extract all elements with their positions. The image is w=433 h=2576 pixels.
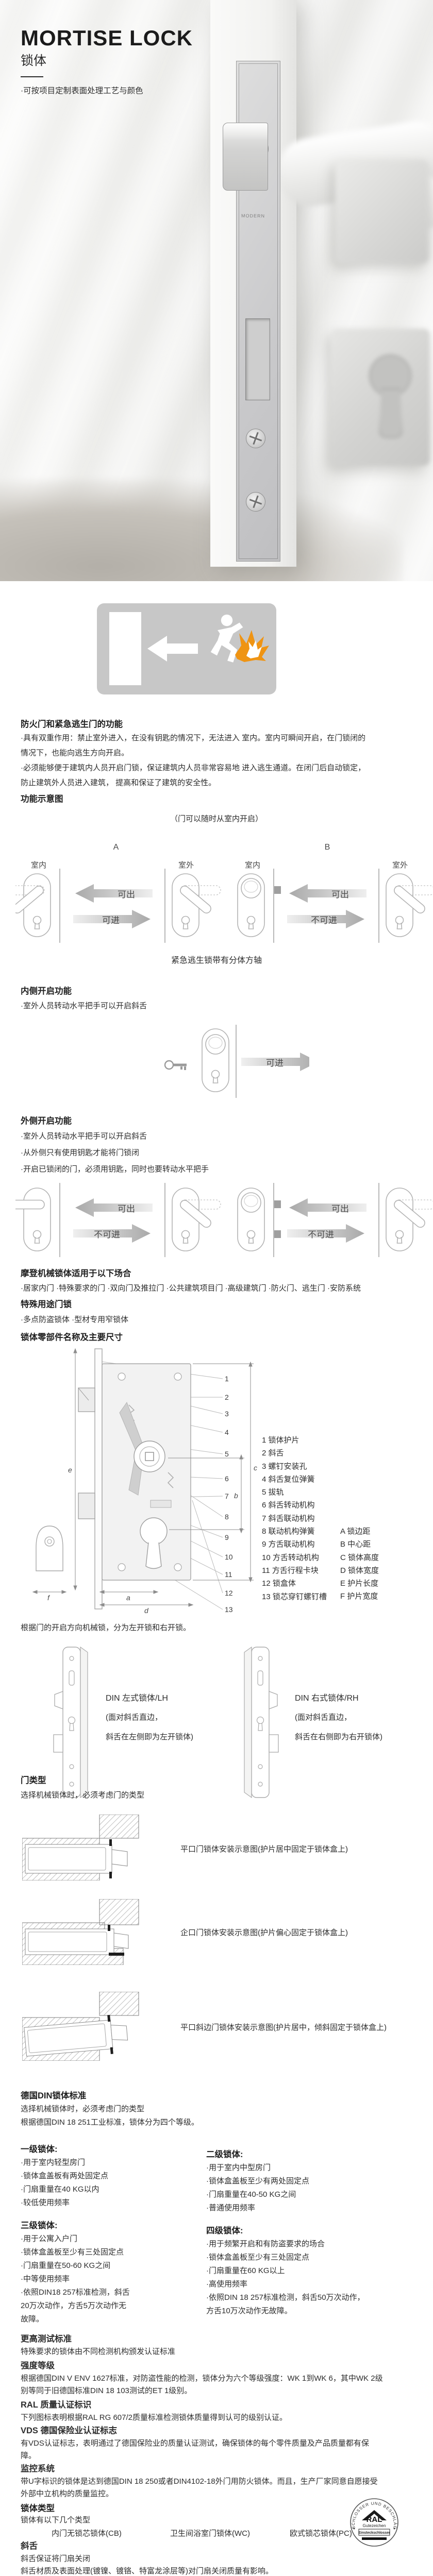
door-type-sub: 选择机械锁体时，必须考虑门的类型 [21, 1789, 144, 1800]
svg-text:3: 3 [225, 1410, 229, 1418]
latch-wedge [112, 1850, 127, 1866]
grade-bullet: ·依照DIN 18 257标准检测，斜舌50万次动作， [206, 2291, 365, 2304]
key-icon [165, 1061, 187, 1070]
rh-line2: 斜舌在右侧即为右开锁体) [295, 1731, 382, 1742]
block-line: 根据德国DIN V ENV 1627标准，对防盗性能的检测，锁体分为六个等级强度… [21, 2372, 383, 2385]
outdoor-label: 室外 [178, 861, 194, 870]
can-exit-label: 可出 [118, 890, 135, 900]
deadbolt-drawing [78, 1493, 95, 1519]
grade-title: 四级锁体: [206, 2224, 365, 2236]
diagram-b-escape-function: 室内 室外 可出 不可进 [229, 859, 433, 946]
svg-text:d: d [144, 1606, 149, 1615]
diagram-a-escape-function: 室内 室外 可出 可进 [15, 859, 224, 946]
grade-bullet: ·高使用频率 [206, 2278, 365, 2291]
no-enter-label: 不可进 [311, 916, 337, 925]
outer-open-bullet-1: ·室外人员转动水平把手可以开启斜舌 [21, 1130, 147, 1141]
lh-line2: 斜舌在左侧即为左开锁体) [106, 1731, 193, 1742]
lock-type-pc: 欧式锁芯锁体(PC) [290, 2528, 352, 2538]
grade-bullet: ·依照DIN18 257标准检测，斜舌 [21, 2286, 130, 2299]
grade-bullet: ·用于室内中型房门 [206, 2161, 309, 2175]
strength-grade-block: 强度等级 根据德国DIN V ENV 1627标准，对防盗性能的检测，锁体分为六… [21, 2360, 383, 2398]
grade-bullet: ·锁体盒盖板至少有两处固定点 [206, 2175, 309, 2188]
split-spindle-caption: 紧急逃生锁带有分体方轴 [0, 953, 433, 965]
svg-text:e: e [68, 1466, 72, 1474]
seal-corner [109, 1953, 124, 1956]
lock-body-rh [244, 1647, 278, 1798]
grade-bullet: ·门扇重量在50-60 KG之间 [21, 2259, 130, 2273]
din-sub2: 根据德国DIN 18 251工业标准，锁体分为四个等级。 [21, 2116, 199, 2127]
latch-block-bottom [274, 1230, 281, 1238]
rh-title: DIN 右式锁体/RH [295, 1691, 359, 1703]
lock-type-wc: 卫生间浴室门锁体(WC) [170, 2528, 250, 2538]
grade-2-block: 二级锁体: ·用于室内中型房门 ·锁体盒盖板至少有两处固定点 ·门扇重量在40-… [206, 2147, 309, 2215]
block-line: 斜舌材质及表面处理(镀镍、镀铬、特富龙涂层等)对门扇关闭质量有影响。 [21, 2565, 273, 2576]
faceplate-screw-mid [246, 429, 265, 448]
part-item: 8 联动机构弹簧 [262, 1525, 327, 1538]
lh-lock-drawing [47, 1645, 99, 1800]
part-item: 12 锁盒体 [262, 1577, 327, 1590]
svg-text:10: 10 [225, 1553, 233, 1561]
lock-box-section [28, 1848, 106, 1870]
page-subtitle: 锁体 [21, 50, 46, 69]
indoor-knob [241, 1193, 261, 1212]
exit-arrow [75, 884, 153, 903]
brand-logo: MODERN [241, 213, 265, 218]
install-diagram-flush [22, 1815, 172, 1880]
svg-text:8: 8 [225, 1513, 229, 1521]
din-heading: 德国DIN锁体标准 [21, 2089, 86, 2101]
dim-item: D 锁体宽度 [340, 1564, 379, 1577]
block-heading: 斜舌 [21, 2540, 273, 2553]
title-divider [21, 76, 43, 77]
jamb-top [99, 1815, 139, 1838]
seal-top [108, 1925, 110, 1931]
faceplate-screw-bottom [246, 492, 265, 512]
usage-heading: 摩登机械锁体适用于以下场合 [21, 1266, 131, 1279]
grade-bullet: 故障。 [21, 2313, 130, 2326]
part-item: 5 拔轨 [262, 1486, 327, 1499]
block-line: 有VDS认证标志，表明通过了德国保险业的质量认证测试，确保锁体的每个零件质量及产… [21, 2437, 369, 2450]
exit-arrow [289, 884, 367, 903]
handedness-caption: 根据门的开启方向机械锁，分为左开锁和右开锁。 [21, 1622, 191, 1633]
strike-piece [36, 1526, 63, 1571]
install-caption-bevel: 平口斜边门锁体安装示意图(护片居中，倾斜固定于锁体盒上) [180, 2022, 387, 2032]
grade-4-block: 四级锁体: ·用于频繁开启和有防盗要求的场合 ·锁体盒盖板至少有三处固定点 ·门… [206, 2224, 365, 2318]
latch-block-top [274, 1200, 281, 1208]
svg-text:6: 6 [225, 1475, 229, 1483]
outdoor-label: 室外 [392, 861, 408, 870]
svg-text:a: a [126, 1594, 130, 1602]
seal-top [109, 1839, 112, 1846]
part-item: 13 锁芯穿钉螺钉槽 [262, 1590, 327, 1603]
grade-bullet: ·用于频繁开启和有防盗要求的场合 [206, 2238, 365, 2251]
svg-text:b: b [234, 1492, 238, 1500]
rug-blur [0, 479, 402, 581]
part-item: 10 方舌转动机构 [262, 1551, 327, 1564]
block-line: 障。 [21, 2450, 369, 2463]
latch-wedge [111, 2024, 128, 2041]
fire-line-1: ·具有双重作用：禁止室外进入，在没有钥匙的情况下，无法进入 室内。室内可瞬间开启… [21, 732, 365, 743]
svg-text:1: 1 [225, 1375, 229, 1383]
grade-bullet: ·较低使用频率 [21, 2196, 108, 2210]
handle-rosette [335, 160, 429, 264]
grade-bullet: 20万次动作，方舌5万次动作无 [21, 2299, 130, 2313]
lock-type-cb: 内门无锁芯锁体(CB) [52, 2528, 122, 2538]
sign-door [109, 612, 141, 685]
special-lock-heading: 特殊用途门锁 [21, 1297, 72, 1310]
grade-bullet: ·普通使用频率 [206, 2201, 309, 2215]
latch-wedge [114, 1933, 128, 1948]
dimension-list: A 锁边距 B 中心距 C 锁体高度 D 锁体宽度 E 护片长度 F 护片宽度 [340, 1525, 379, 1603]
can-exit-label: 可出 [118, 1204, 135, 1214]
emergency-exit-sign [97, 603, 276, 694]
fire-line-4: 防止建筑外人员进入建筑， 提高和保证了建筑的安全性。 [21, 777, 216, 788]
svg-text:f: f [47, 1594, 51, 1602]
latch-bolt [223, 123, 268, 191]
grade-1-block: 一级锁体: ·用于室内轻型房门 ·锁体盒盖板有两处固定点 ·门扇重量在40 KG… [21, 2142, 108, 2210]
block-heading: VDS 德国保险业认证标志 [21, 2425, 369, 2437]
svg-text:7: 7 [225, 1492, 229, 1500]
knob [206, 1035, 225, 1054]
grade-bullet: ·用于室内轻型房门 [21, 2156, 108, 2170]
install-caption-rebate: 企口门锁体安装示意图(护片偏心固定于锁体盒上) [180, 1927, 348, 1938]
lh-line1: (面对斜舌直边， [106, 1711, 162, 1722]
dim-item: A 锁边距 [340, 1525, 379, 1538]
no-enter-label: 不可进 [94, 1230, 120, 1240]
can-enter-label: 可进 [266, 1058, 284, 1068]
svg-text:4: 4 [225, 1428, 229, 1436]
grade-title: 三级锁体: [21, 2218, 130, 2231]
faceplate-strip [95, 1349, 102, 1609]
fire-line-2: 情况下，也能向逃生方向开启。 [21, 747, 129, 758]
fire-section-heading: 防火门和紧急逃生门的功能 [21, 717, 123, 730]
euro-cylinder-slot [379, 388, 403, 438]
inner-open-bullet: ·室外人员转动水平把手可以开启斜舌 [21, 1000, 147, 1011]
grade-title: 一级锁体: [21, 2142, 108, 2155]
door-type-heading: 门类型 [21, 1773, 46, 1786]
block-line: 下列图标表明根据RAL RG 607/2质量标准检测锁体质量得到认可的级别认证。 [21, 2412, 287, 2425]
block-line: 特殊要求的锁体由不同检测机构颁发认证标准 [21, 2346, 175, 2359]
grade-bullet: ·门扇重量在40 KG以内 [21, 2183, 108, 2196]
block-heading: 强度等级 [21, 2360, 383, 2372]
seal-ral: RAL [367, 2515, 382, 2524]
seal-line2: Einsteckschlosser [358, 2531, 390, 2535]
monitoring-block: 监控系统 带U字标识的锁体是达到德国DIN 18 250或者DIN4102-18… [21, 2463, 378, 2501]
block-heading: RAL 质量认证标识 [21, 2399, 287, 2412]
part-item: 7 斜舌联动机构 [262, 1512, 327, 1525]
cylinder-escutcheon [331, 329, 430, 466]
part-item: 1 锁体护片 [262, 1434, 327, 1447]
indoor-knob [241, 878, 261, 898]
parts-list: 1 锁体护片 2 斜舌 3 螺钉安装孔 4 斜舌复位弹簧 5 拔轨 6 斜舌转动… [262, 1434, 327, 1603]
jamb-top [99, 1899, 139, 1925]
grade-bullet: ·锁体盒盖板至少有三处固定点 [206, 2251, 365, 2264]
lock-parts-drawing: 12 34 56 78 910 1112 13 e f a d c b [21, 1346, 263, 1621]
lock-body-lh [54, 1647, 88, 1798]
grade-bullet: ·锁体盒盖板有两处固定点 [21, 2170, 108, 2183]
indoor-plate [24, 1188, 51, 1251]
grade-title: 二级锁体: [206, 2147, 309, 2160]
block-heading: 更高测试标准 [21, 2333, 175, 2346]
diagram-b-label: B [317, 843, 338, 852]
ral-block: RAL 质量认证标识 下列图标表明根据RAL RG 607/2质量标准检测锁体质… [21, 2399, 287, 2424]
svg-text:12: 12 [225, 1589, 233, 1597]
customization-note: ·可按项目定制表面处理工艺与颜色 [21, 84, 143, 96]
grade-3-block: 三级锁体: ·用于公寓入户门 ·锁体盒盖板至少有三处固定点 ·门扇重量在50-6… [21, 2218, 130, 2326]
fire-line-3: ·必须能够便于建筑内人员开启门锁，保证建筑内人员非常容易地 进入逃生通道。在闭门… [21, 762, 365, 773]
vds-block: VDS 德国保险业认证标志 有VDS认证标志，表明通过了德国保险业的质量认证测试… [21, 2425, 369, 2463]
block-heading: 监控系统 [21, 2463, 378, 2476]
svg-text:c: c [254, 1464, 257, 1472]
lock-box-section [28, 1932, 107, 1952]
latch-block-text: 斜舌 斜舌保证将门扇关闭 斜舌材质及表面处理(镀镍、镀铬、特富龙涂层等)对门扇关… [21, 2540, 273, 2576]
install-diagram-rebate [22, 1899, 172, 1965]
seal-bar [362, 2537, 387, 2540]
dim-item: F 护片宽度 [340, 1590, 379, 1603]
lock-types-heading: 锁体类型 [21, 2501, 55, 2514]
parts-heading: 锁体零部件名称及主要尺寸 [21, 1330, 123, 1343]
part-item: 6 斜舌转动机构 [262, 1499, 327, 1512]
part-item: 9 方舌联动机构 [262, 1538, 327, 1551]
part-item: 2 斜舌 [262, 1447, 327, 1460]
indoor-label: 室内 [31, 861, 46, 870]
dim-item: B 中心距 [340, 1538, 379, 1551]
higher-test-block: 更高测试标准 特殊要求的锁体由不同检测机构颁发认证标准 [21, 2333, 175, 2358]
indoor-lever [15, 1200, 44, 1209]
latch-bolt-drawing [78, 1388, 95, 1412]
inner-open-heading: 内侧开启功能 [21, 984, 72, 996]
install-caption-flush: 平口门锁体安装示意图(护片居中固定于锁体盒上) [180, 1843, 348, 1854]
ral-seal-icon: SCHLOSSER UND BESCHLÄGE RAL Gutezeichen … [348, 2497, 400, 2548]
page-title: MORTISE LOCK [21, 26, 193, 50]
install-diagram-bevel [22, 1992, 172, 2061]
lock-types-sub: 锁体有以下几个类型 [21, 2514, 90, 2525]
svg-text:9: 9 [225, 1533, 229, 1541]
latch-block [274, 886, 281, 894]
special-lock-line: ·多点防盗锁体 ·型材专用窄锁体 [21, 1314, 128, 1325]
part-item: 3 螺钉安装孔 [262, 1460, 327, 1473]
grade-bullet: ·门扇重量在60 KG以上 [206, 2264, 365, 2278]
din-sub1: 选择机械锁体时，必须考虑门的类型 [21, 2103, 144, 2114]
indoor-label: 室内 [245, 861, 260, 870]
part-item: 4 斜舌复位弹簧 [262, 1473, 327, 1486]
block-line: 别等同于旧德国标准DIN 18 103测试的ET 1级别。 [21, 2385, 383, 2398]
deadbolt-slot [245, 318, 270, 400]
grade-bullet: ·门扇重量在40-50 KG之间 [206, 2188, 309, 2201]
grade-bullet: ·用于公寓入户门 [21, 2232, 130, 2246]
product-doc-page: MODERN MORTISE LOCK 锁体 ·可按项目定制表面处理工艺与颜色 … [0, 0, 433, 2576]
exit-arrow [289, 1198, 367, 1217]
hero-photo: MODERN MORTISE LOCK 锁体 ·可按项目定制表面处理工艺与颜色 [0, 0, 433, 581]
block-line: 带U字标识的锁体是达到德国DIN 18 250或者DIN4102-18外门用防火… [21, 2476, 378, 2488]
diagram-a-label: A [106, 843, 126, 852]
grade-bullet: ·锁体盒盖板至少有三处固定点 [21, 2246, 130, 2259]
function-diagram-heading: 功能示意图 [21, 792, 63, 804]
outer-open-heading: 外侧开启功能 [21, 1114, 72, 1126]
svg-text:2: 2 [225, 1393, 229, 1401]
seal-bottom [109, 1872, 112, 1878]
outer-open-bullet-2: ·从外侧只有使用钥匙才能将门锁闭 [21, 1147, 139, 1158]
block-line: 斜舌保证将门扇关闭 [21, 2553, 273, 2566]
grade-bullet: ·中等使用频率 [21, 2273, 130, 2286]
outer-open-diagram-lever: 可出 不可进 [15, 1183, 224, 1260]
part-item: 11 方舌行程卡块 [262, 1564, 327, 1577]
svg-text:11: 11 [225, 1570, 232, 1579]
function-diagram-caption: （门可以随时从室内开启） [0, 813, 433, 824]
svg-text:5: 5 [225, 1450, 229, 1458]
can-enter-label: 可进 [102, 916, 120, 925]
outer-open-bullet-3: ·开启已锁闭的门，必须用钥匙，同时也要转动水平把手 [21, 1163, 209, 1174]
can-exit-label: 可出 [331, 890, 349, 900]
rh-line1: (面对斜舌直边， [295, 1711, 352, 1722]
part-numbers: 12 34 56 78 910 1112 13 [225, 1375, 233, 1614]
rh-lock-drawing [236, 1645, 288, 1800]
no-enter-label: 不可进 [308, 1230, 334, 1240]
outer-open-diagram-knob: 可出 不可进 [229, 1183, 433, 1260]
svg-text:13: 13 [225, 1605, 233, 1614]
seal-line1: Gutezeichen [363, 2523, 386, 2528]
dim-item: E 护片长度 [340, 1577, 379, 1590]
block-line: 外部中立机构的质量监控。 [21, 2488, 378, 2501]
jamb-top [99, 1992, 139, 2015]
usage-line: ·居家内门 ·特殊要求的门 ·双向门及推拉门 ·公共建筑项目门 ·高级建筑门 ·… [21, 1282, 361, 1293]
grade-bullet: 方舌10万次动作无故障。 [206, 2304, 365, 2318]
exit-arrow [75, 1198, 153, 1217]
can-exit-label: 可出 [331, 1204, 349, 1214]
dim-item: C 锁体高度 [340, 1551, 379, 1564]
inner-open-diagram: 可进 [155, 1023, 309, 1100]
lh-title: DIN 左式锁体/LH [106, 1691, 168, 1703]
